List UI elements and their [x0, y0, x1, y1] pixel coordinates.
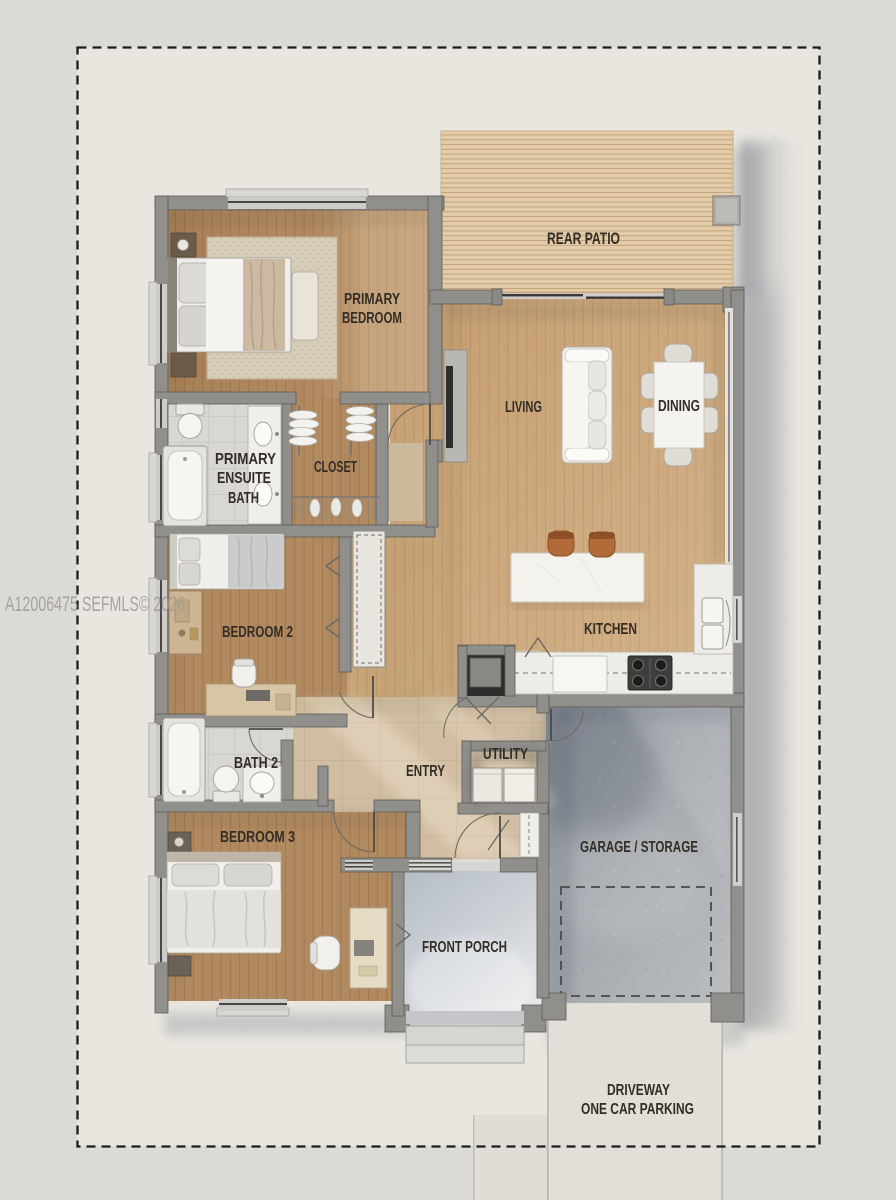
svg-text:DINING: DINING — [658, 398, 700, 415]
svg-text:REAR PATIO: REAR PATIO — [547, 230, 620, 248]
svg-text:PRIMARY: PRIMARY — [215, 451, 277, 468]
svg-text:KITCHEN: KITCHEN — [584, 621, 637, 638]
svg-text:DRIVEWAY: DRIVEWAY — [607, 1082, 670, 1099]
svg-text:GARAGE / STORAGE: GARAGE / STORAGE — [580, 839, 698, 856]
svg-text:PRIMARY: PRIMARY — [344, 291, 401, 308]
svg-text:A12006475 SEFMLS© 2026: A12006475 SEFMLS© 2026 — [5, 593, 185, 616]
svg-text:BEDROOM 2: BEDROOM 2 — [222, 624, 293, 641]
svg-text:BEDROOM 3: BEDROOM 3 — [220, 829, 295, 846]
svg-text:BATH: BATH — [228, 490, 259, 507]
svg-text:CLOSET: CLOSET — [314, 459, 357, 476]
svg-text:BEDROOM: BEDROOM — [342, 310, 402, 327]
svg-text:UTILITY: UTILITY — [483, 746, 528, 763]
svg-text:ENSUITE: ENSUITE — [217, 470, 271, 487]
svg-text:BATH 2: BATH 2 — [234, 755, 278, 772]
svg-text:ONE CAR PARKING: ONE CAR PARKING — [581, 1101, 694, 1118]
svg-text:LIVING: LIVING — [505, 399, 542, 416]
svg-text:ENTRY: ENTRY — [406, 763, 445, 780]
svg-text:FRONT PORCH: FRONT PORCH — [422, 939, 507, 956]
